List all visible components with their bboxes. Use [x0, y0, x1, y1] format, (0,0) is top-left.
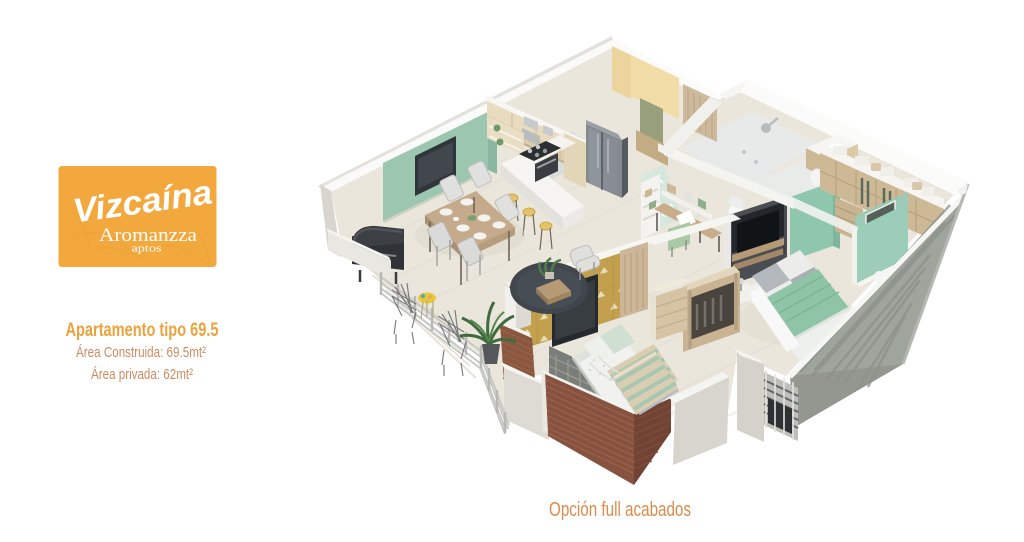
svg-text:Opción full acabados: Opción full acabados — [549, 499, 691, 521]
svg-text:Área privada: 62mt²: Área privada: 62mt² — [91, 366, 193, 383]
svg-text:Área Construida: 69.5mt²: Área Construida: 69.5mt² — [76, 344, 206, 361]
svg-text:aptos: aptos — [132, 244, 162, 255]
svg-text:Apartamento tipo 69.5: Apartamento tipo 69.5 — [66, 320, 219, 341]
